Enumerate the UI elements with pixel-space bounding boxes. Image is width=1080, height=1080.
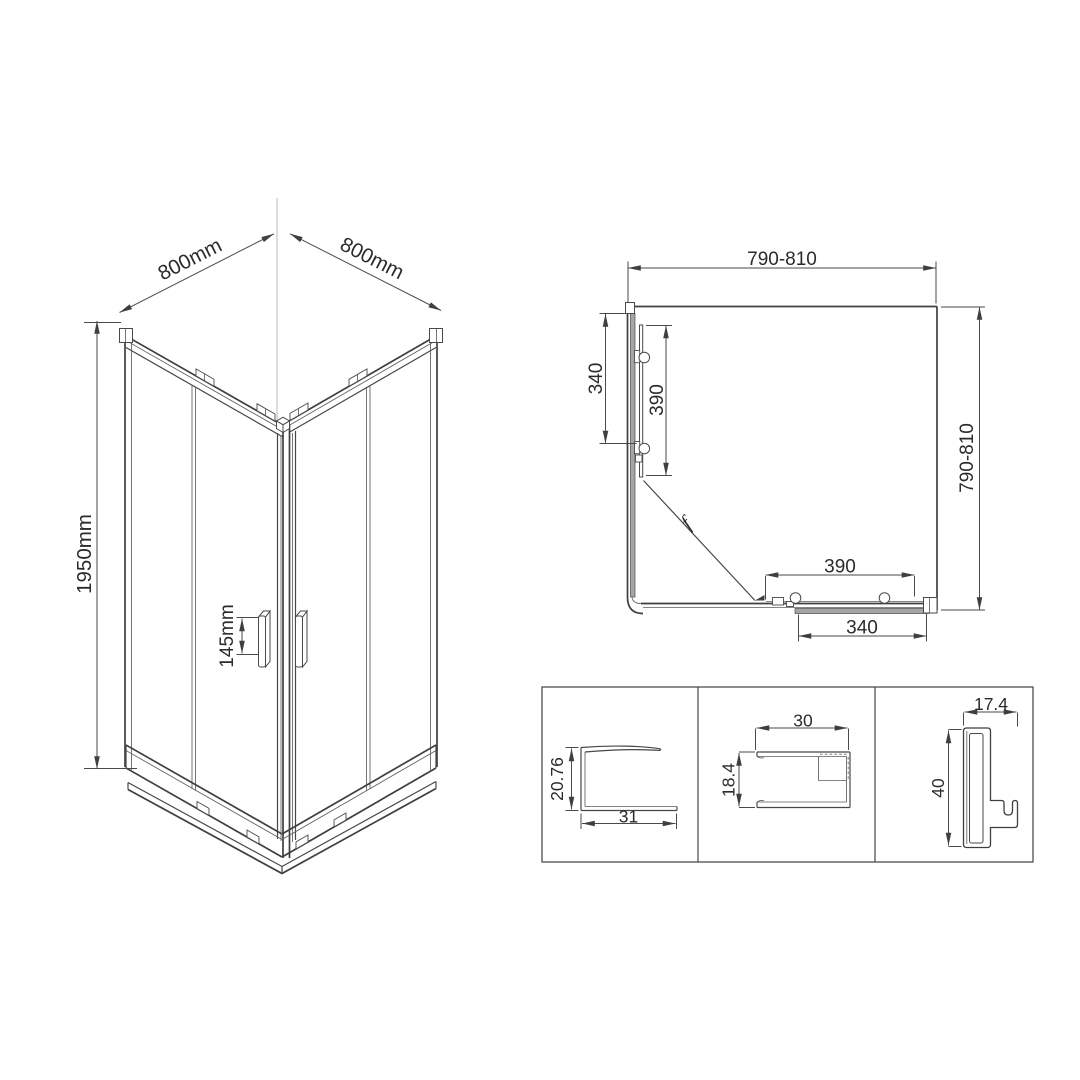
section-mark-label: f <box>676 510 699 534</box>
dim-width-left: 800mm <box>120 234 275 313</box>
iso-bottom-roller-brackets <box>197 802 346 849</box>
iso-dimensions: 800mm 800mm 1950mm 145mm <box>73 233 441 769</box>
right-door-handle <box>296 611 308 667</box>
dim-profile3-height-label: 40 <box>928 778 948 798</box>
dim-profile2-width: 30 <box>756 711 849 751</box>
profile-cell-2: 30 18.4 <box>719 711 851 808</box>
dim-plan-left-inner: 390 <box>646 326 672 476</box>
dim-profile2-height: 18.4 <box>719 752 756 808</box>
profile-details-frame <box>542 687 1033 862</box>
plan-door-diagonal: f <box>644 481 765 601</box>
plan-view: f 790-810 790-810 340 <box>586 249 985 642</box>
iso-corner-caps <box>120 329 443 433</box>
dim-plan-bottom-inner-label: 390 <box>824 557 856 578</box>
dim-profile1-width: 31 <box>581 807 677 830</box>
drawing-sheet: 800mm 800mm 1950mm 145mm <box>0 0 1080 1080</box>
profile-details: 20.76 31 <box>542 687 1033 862</box>
dim-profile3-height: 40 <box>928 730 962 847</box>
left-door-handle <box>259 611 271 667</box>
profile-cell-1: 20.76 31 <box>547 746 677 829</box>
dim-width-right: 800mm <box>290 233 441 311</box>
dim-plan-top-label: 790-810 <box>747 249 817 270</box>
dim-handle-label: 145mm <box>217 604 238 667</box>
dim-handle: 145mm <box>217 604 258 667</box>
dim-plan-bottom-outer: 340 <box>799 614 927 642</box>
technical-drawing: 800mm 800mm 1950mm 145mm <box>0 0 1080 1080</box>
dim-profile3-width-label: 17.4 <box>974 694 1008 714</box>
dim-plan-bottom-inner: 390 <box>766 557 915 600</box>
dim-plan-top: 790-810 <box>628 249 936 304</box>
profile-cell-3: 17.4 40 <box>928 694 1018 848</box>
dim-profile3-width: 17.4 <box>964 694 1018 727</box>
dim-profile1-height-label: 20.76 <box>547 757 567 801</box>
plan-outline <box>628 303 938 614</box>
iso-view: 800mm 800mm 1950mm 145mm <box>73 198 443 874</box>
dim-plan-left-outer-label: 340 <box>586 363 607 395</box>
dim-profile1-height: 20.76 <box>547 748 579 811</box>
dim-plan-bottom-outer-label: 340 <box>846 618 878 639</box>
dim-plan-right-label: 790-810 <box>957 423 978 493</box>
plan-corner-posts <box>626 303 938 614</box>
dim-profile1-width-label: 31 <box>619 807 638 827</box>
dim-profile2-width-label: 30 <box>793 711 813 731</box>
dim-height-label: 1950mm <box>73 514 96 594</box>
dim-plan-left-inner-label: 390 <box>647 384 668 416</box>
dim-width-right-label: 800mm <box>336 233 407 285</box>
iso-corner-post <box>283 425 290 858</box>
dim-plan-left-outer: 340 <box>586 314 637 444</box>
dim-profile2-height-label: 18.4 <box>719 763 739 797</box>
plan-glass-panels <box>631 314 930 614</box>
dim-width-left-label: 800mm <box>154 234 225 286</box>
dim-height: 1950mm <box>73 321 137 769</box>
dim-plan-right: 790-810 <box>941 307 985 610</box>
